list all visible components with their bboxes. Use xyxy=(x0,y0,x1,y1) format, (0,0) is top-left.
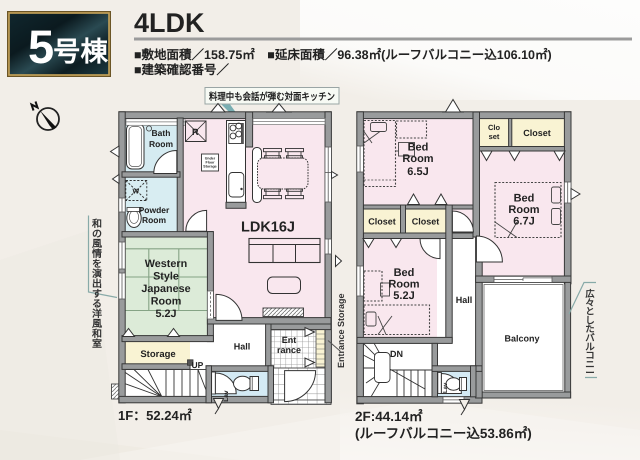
svg-text:Room: Room xyxy=(142,215,167,225)
svg-text:Ent: Ent xyxy=(282,335,297,345)
svg-text:Hall: Hall xyxy=(456,295,473,305)
svg-text:Powder: Powder xyxy=(139,205,170,215)
svg-text:Closet: Closet xyxy=(412,217,440,227)
svg-text:Entrance Storage: Entrance Storage xyxy=(336,293,346,368)
svg-text:Hall: Hall xyxy=(234,342,251,352)
svg-text:Room: Room xyxy=(508,204,539,216)
svg-text:Balcony: Balcony xyxy=(504,334,539,344)
svg-text:■敷地面積／158.75㎡ ■延床面積／96.38㎡(ルーフ: ■敷地面積／158.75㎡ ■延床面積／96.38㎡(ルーフバルコニー込106.… xyxy=(134,47,552,62)
svg-text:和の風情を演出する洋風和室: 和の風情を演出する洋風和室 xyxy=(91,218,102,350)
svg-text:DN: DN xyxy=(390,349,403,359)
svg-text:Western: Western xyxy=(145,258,187,270)
svg-text:広々としたバルコニー: 広々としたバルコニー xyxy=(585,288,595,379)
svg-text:5.2J: 5.2J xyxy=(393,290,414,302)
svg-text:Lav: Lav xyxy=(442,382,449,393)
svg-text:Lav: Lav xyxy=(223,390,230,402)
svg-text:R: R xyxy=(192,127,199,137)
svg-text:Japanese: Japanese xyxy=(141,283,190,295)
svg-text:Bed: Bed xyxy=(514,193,535,205)
svg-text:Bed: Bed xyxy=(394,267,415,279)
svg-text:2F:44.14㎡: 2F:44.14㎡ xyxy=(355,408,423,424)
svg-text:1F：52.24㎡: 1F：52.24㎡ xyxy=(118,408,192,423)
svg-text:6.5J: 6.5J xyxy=(407,166,428,178)
svg-text:4LDK: 4LDK xyxy=(134,8,205,38)
svg-text:Room: Room xyxy=(149,139,174,149)
svg-text:Room: Room xyxy=(388,279,419,291)
svg-text:号棟: 号棟 xyxy=(53,36,108,67)
svg-text:Clo: Clo xyxy=(488,123,501,132)
svg-text:■建築確認番号／: ■建築確認番号／ xyxy=(134,63,230,77)
svg-text:料理中も会話が弾む対面キッチン: 料理中も会話が弾む対面キッチン xyxy=(209,91,335,103)
svg-text:Bed: Bed xyxy=(408,142,429,154)
svg-text:Room: Room xyxy=(402,153,433,165)
svg-text:Bath: Bath xyxy=(152,128,171,138)
svg-text:6.7J: 6.7J xyxy=(513,216,534,228)
svg-text:W: W xyxy=(133,189,140,196)
svg-text:rance: rance xyxy=(277,345,301,355)
svg-text:Closet: Closet xyxy=(523,128,551,138)
svg-text:5.2J: 5.2J xyxy=(155,308,176,320)
svg-text:Storage: Storage xyxy=(140,349,175,360)
svg-text:Storage: Storage xyxy=(203,165,216,169)
svg-text:5: 5 xyxy=(28,20,54,73)
svg-text:UP: UP xyxy=(192,360,204,370)
svg-text:(ルーフバルコニー込53.86㎡): (ルーフバルコニー込53.86㎡) xyxy=(355,425,532,441)
svg-text:Style: Style xyxy=(153,271,179,283)
svg-text:Closet: Closet xyxy=(368,217,396,227)
svg-text:LDK16J: LDK16J xyxy=(241,220,295,236)
svg-text:set: set xyxy=(489,132,500,141)
svg-text:Room: Room xyxy=(151,296,182,308)
